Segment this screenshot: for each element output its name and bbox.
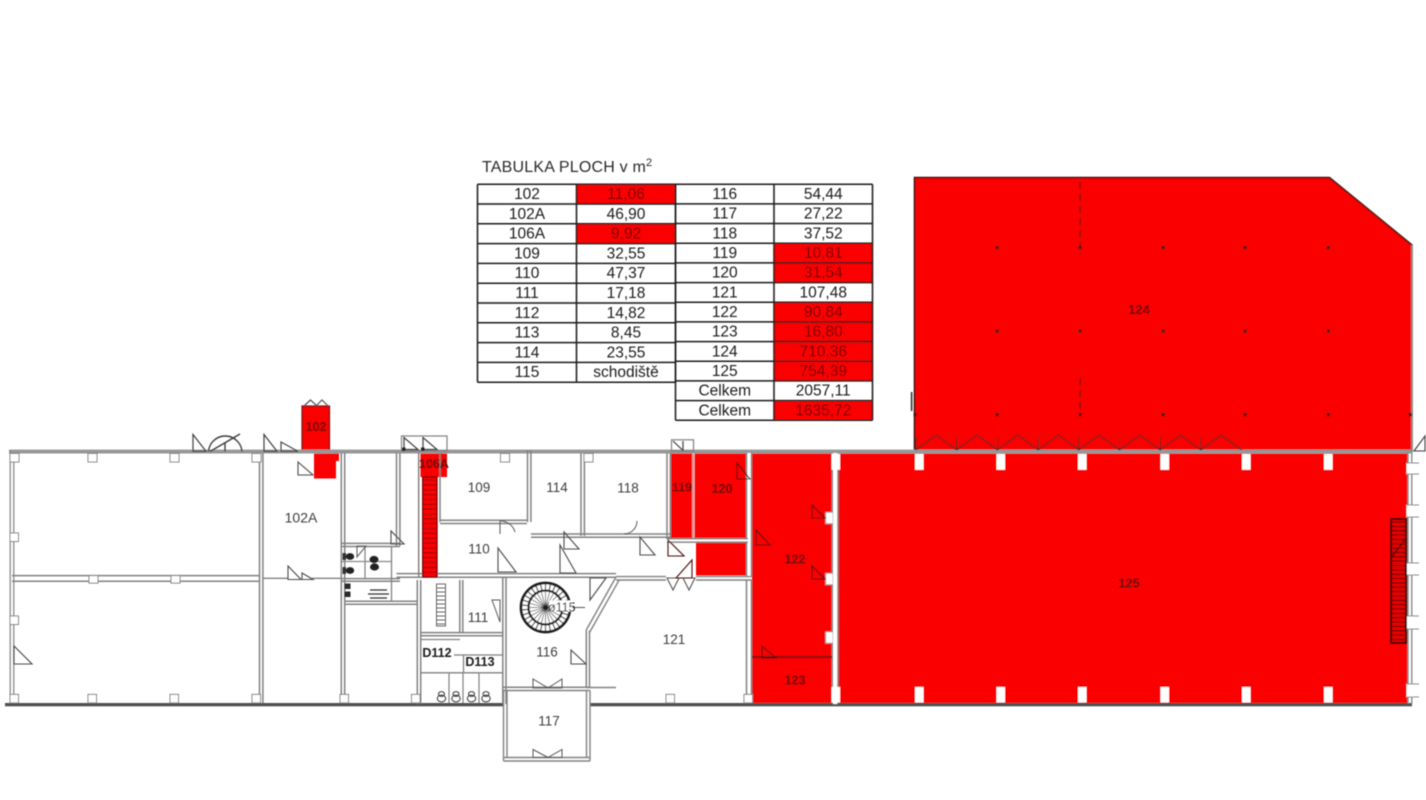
svg-text:114: 114	[546, 480, 568, 495]
svg-text:schodiště: schodiště	[593, 364, 658, 381]
svg-text:8,45: 8,45	[611, 325, 641, 342]
svg-text:110: 110	[468, 542, 490, 557]
svg-text:116: 116	[712, 186, 737, 203]
svg-text:123: 123	[785, 674, 806, 688]
svg-text:120: 120	[712, 265, 738, 282]
svg-text:37,52: 37,52	[804, 225, 843, 242]
svg-text:TABULKA PLOCH v m2: TABULKA PLOCH v m2	[482, 157, 652, 176]
svg-text:124: 124	[712, 343, 738, 360]
svg-text:106A: 106A	[509, 226, 546, 243]
svg-text:710,36: 710,36	[800, 343, 847, 360]
svg-text:115: 115	[515, 364, 540, 381]
svg-text:117: 117	[538, 714, 560, 729]
svg-text:14,82: 14,82	[607, 305, 646, 322]
svg-text:114: 114	[515, 344, 540, 361]
svg-text:D113: D113	[465, 655, 494, 669]
svg-text:32,55: 32,55	[607, 245, 646, 262]
svg-text:10,81: 10,81	[804, 245, 843, 262]
svg-text:124: 124	[1128, 302, 1150, 317]
svg-text:754,39: 754,39	[800, 363, 847, 380]
svg-text:2057,11: 2057,11	[796, 383, 851, 400]
svg-text:90,84: 90,84	[804, 304, 843, 321]
svg-text:119: 119	[712, 245, 737, 262]
svg-text:121: 121	[663, 632, 686, 647]
svg-text:122: 122	[785, 553, 806, 567]
svg-text:23,55: 23,55	[607, 344, 646, 361]
svg-text:111: 111	[468, 610, 489, 625]
svg-text:109: 109	[468, 480, 491, 495]
svg-text:125: 125	[1118, 576, 1140, 591]
svg-text:116: 116	[536, 645, 558, 660]
svg-text:112: 112	[515, 305, 540, 322]
svg-text:102A: 102A	[285, 510, 318, 526]
svg-text:31,54: 31,54	[804, 265, 843, 282]
svg-text:Celkem: Celkem	[698, 402, 751, 419]
svg-text:113: 113	[515, 325, 540, 342]
svg-text:122: 122	[712, 304, 738, 321]
svg-text:46,90: 46,90	[607, 206, 646, 223]
svg-text:9,92: 9,92	[611, 226, 641, 243]
svg-text:125: 125	[712, 363, 738, 380]
svg-text:54,44: 54,44	[804, 186, 843, 203]
svg-text:117: 117	[712, 206, 737, 223]
svg-text:119: 119	[672, 481, 692, 495]
svg-text:D112: D112	[422, 646, 451, 660]
svg-text:110: 110	[515, 265, 540, 282]
svg-text:123: 123	[712, 324, 738, 341]
svg-text:11,06: 11,06	[607, 186, 645, 203]
svg-text:ø115: ø115	[548, 601, 576, 615]
svg-text:118: 118	[617, 481, 639, 496]
svg-text:111: 111	[515, 285, 539, 302]
svg-text:102: 102	[306, 420, 327, 434]
svg-text:102: 102	[514, 186, 540, 203]
svg-text:102A: 102A	[509, 206, 546, 223]
svg-text:1635,72: 1635,72	[795, 402, 851, 419]
svg-text:27,22: 27,22	[804, 206, 843, 223]
svg-text:Celkem: Celkem	[698, 383, 751, 400]
svg-text:47,37: 47,37	[607, 265, 646, 282]
svg-text:106A: 106A	[419, 457, 449, 471]
svg-text:16,80: 16,80	[804, 324, 843, 341]
svg-text:121: 121	[712, 284, 738, 301]
svg-text:17,18: 17,18	[607, 285, 646, 302]
svg-text:118: 118	[712, 225, 737, 242]
svg-text:107,48: 107,48	[800, 284, 847, 301]
svg-text:120: 120	[712, 482, 733, 496]
svg-text:109: 109	[514, 245, 540, 262]
